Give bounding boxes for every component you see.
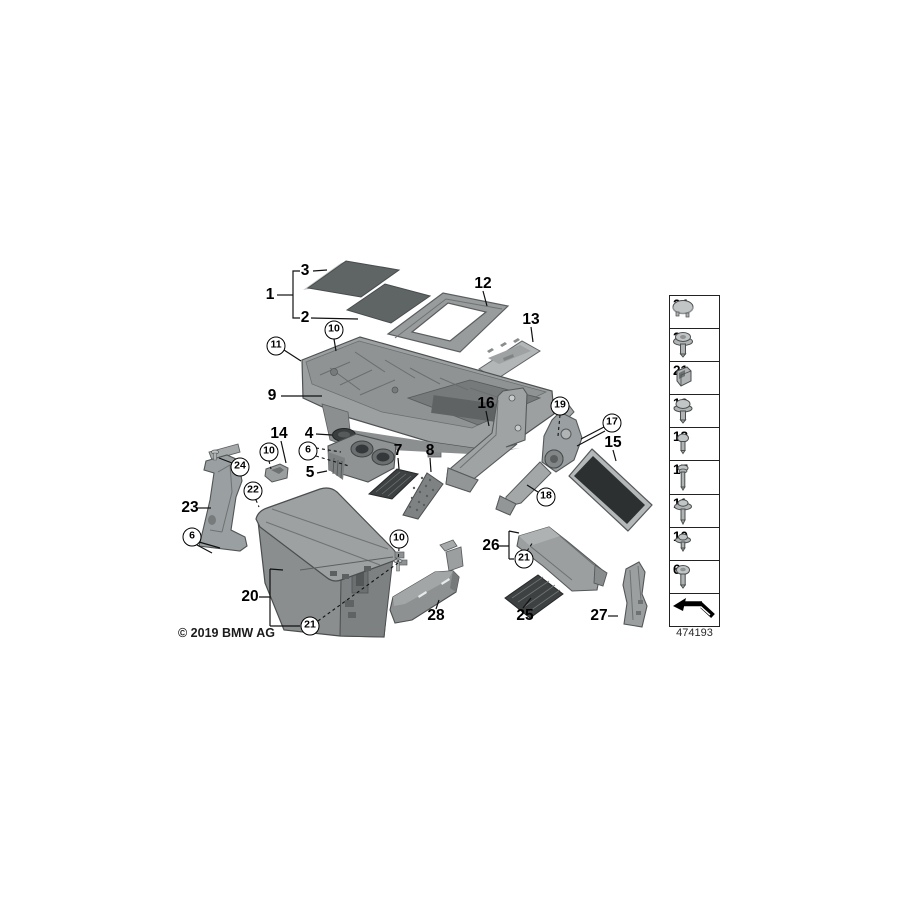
part-20-armrest-console xyxy=(256,488,407,637)
callout-12-label[interactable]: 12 xyxy=(474,275,491,293)
exploded-view-arrow-icon xyxy=(670,595,719,625)
callout-27-label[interactable]: 27 xyxy=(590,607,607,625)
legend-item-17[interactable]: 17 xyxy=(670,461,719,494)
callout-6-badge[interactable]: 6 xyxy=(183,528,202,547)
diagram-number: 474193 xyxy=(669,627,720,639)
cap-plug-icon xyxy=(670,297,696,327)
legend-item-18[interactable]: 18 xyxy=(670,428,719,461)
legend-item-19[interactable]: 19 xyxy=(670,395,719,428)
callout-21-badge[interactable]: 21 xyxy=(515,550,534,569)
callout-11-badge[interactable]: 11 xyxy=(267,337,286,356)
legend-item-24[interactable]: 24 xyxy=(670,296,719,329)
short-screw-with-washer-icon xyxy=(670,529,696,559)
screw-with-washer-icon xyxy=(670,330,696,360)
parts-diagram-canvas: 1 2 3 4 5 7 8 9 12 13 14 15 16 20 23 25 … xyxy=(0,0,900,900)
callout-25-label[interactable]: 25 xyxy=(516,607,533,625)
callout-7-label[interactable]: 7 xyxy=(394,442,403,460)
console-rear-bracket xyxy=(440,540,463,571)
callout-6-badge[interactable]: 6 xyxy=(299,442,318,461)
exploded-view-artwork xyxy=(0,0,900,900)
part-5-cupholder xyxy=(328,434,396,482)
callout-15-label[interactable]: 15 xyxy=(604,434,621,452)
callout-1-label[interactable]: 1 xyxy=(266,286,275,304)
part-28-rear-trim xyxy=(390,571,459,623)
callout-2-label[interactable]: 2 xyxy=(301,309,310,327)
long-screw-icon xyxy=(670,462,696,492)
callout-8-label[interactable]: 8 xyxy=(426,442,435,460)
callout-16-label[interactable]: 16 xyxy=(477,395,494,413)
callout-4-label[interactable]: 4 xyxy=(305,425,314,443)
callout-10-badge[interactable]: 10 xyxy=(260,443,279,462)
callout-21-badge[interactable]: 21 xyxy=(301,617,320,636)
callout-24-badge[interactable]: 24 xyxy=(231,458,250,477)
part-25-rubber-mat xyxy=(505,575,563,618)
clip-icon xyxy=(670,363,696,393)
callout-3-label[interactable]: 3 xyxy=(301,262,310,280)
part-14-clip xyxy=(265,464,288,482)
legend-item-10[interactable]: 10 xyxy=(670,528,719,561)
part-27-pillar-trim xyxy=(623,562,647,627)
screw-with-washer-icon xyxy=(670,396,696,426)
callout-28-label[interactable]: 28 xyxy=(427,607,444,625)
callout-18-badge[interactable]: 18 xyxy=(537,488,556,507)
small-screw-icon xyxy=(670,429,696,459)
callout-17-badge[interactable]: 17 xyxy=(603,414,622,433)
fastener-legend: 24 22 21 19 xyxy=(669,295,720,627)
legend-item-6[interactable]: 6 xyxy=(670,561,719,594)
round-head-screw-icon xyxy=(670,562,696,592)
legend-item-11[interactable]: 11 xyxy=(670,495,719,528)
callout-23-label[interactable]: 23 xyxy=(181,499,198,517)
callout-10-badge[interactable]: 10 xyxy=(325,321,344,340)
legend-footer-cell[interactable] xyxy=(670,594,719,626)
callout-20-label[interactable]: 20 xyxy=(241,588,258,606)
callout-10-badge[interactable]: 10 xyxy=(390,530,409,549)
callout-13-label[interactable]: 13 xyxy=(522,311,539,329)
callout-9-label[interactable]: 9 xyxy=(268,387,277,405)
long-screw-with-washer-icon xyxy=(670,496,696,526)
callout-26-label[interactable]: 26 xyxy=(482,537,499,555)
legend-item-22[interactable]: 22 xyxy=(670,329,719,362)
part-15-lid-panel xyxy=(569,449,652,531)
callout-14-label[interactable]: 14 xyxy=(270,425,287,443)
copyright: © 2019 BMW AG xyxy=(178,626,275,640)
legend-item-21[interactable]: 21 xyxy=(670,362,719,395)
callout-22-badge[interactable]: 22 xyxy=(244,482,263,501)
callout-5-label[interactable]: 5 xyxy=(306,464,315,482)
callout-19-badge[interactable]: 19 xyxy=(551,397,570,416)
